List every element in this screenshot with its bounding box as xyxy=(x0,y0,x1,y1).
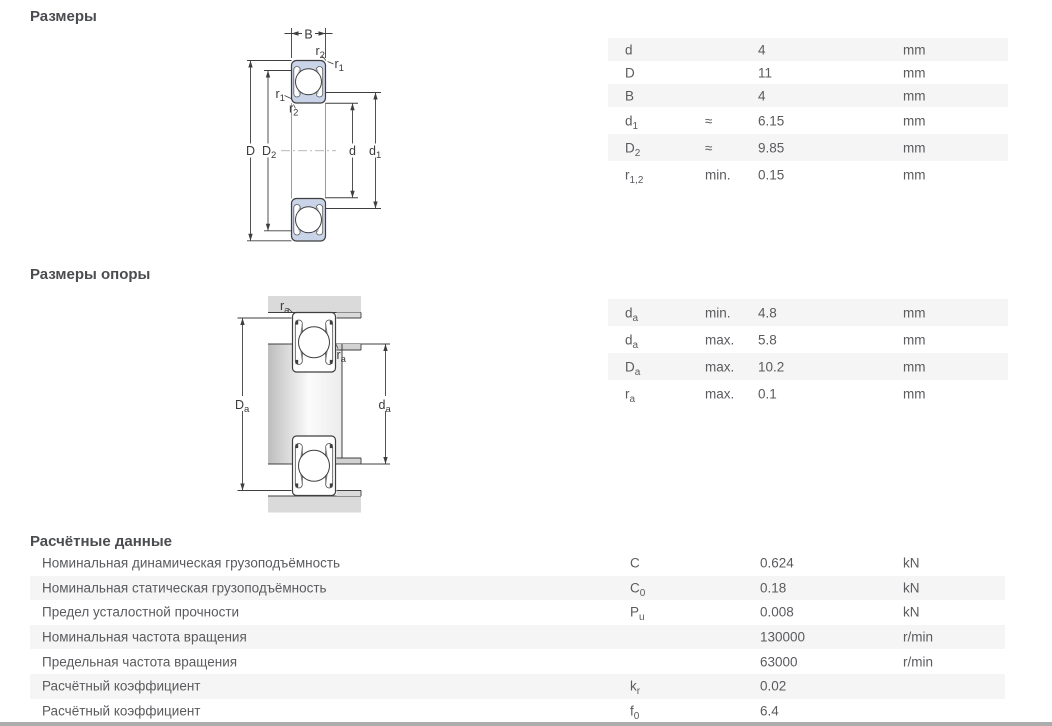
bearing-top xyxy=(292,61,326,104)
section-title-calculation-data: Расчётные данные xyxy=(30,533,172,550)
table-row: Номинальная частота вращения 130000 r/mi… xyxy=(30,625,1005,650)
dimensions-table: d 4 mm D 11 mm B 4 mm d1 ≈ 6.15 mm D2 ≈ … xyxy=(608,38,1008,188)
ball-top xyxy=(299,327,330,358)
table-row: Предел усталостной прочности Pu 0.008 kN xyxy=(30,600,1005,625)
label-r1-left: r1 xyxy=(276,87,285,104)
abutment-bearing-top xyxy=(293,313,336,373)
dimension-da: da xyxy=(377,344,396,464)
dimension-Da: Da xyxy=(234,318,254,491)
ball-bottom xyxy=(296,207,322,233)
table-row: D 11 mm xyxy=(608,61,1008,84)
label-r1-top: r1 xyxy=(335,57,344,74)
table-row: ra max. 0.1 mm xyxy=(608,380,1008,407)
abutment-table: da min. 4.8 mm da max. 5.8 mm Da max. 10… xyxy=(608,299,1008,407)
table-row: Расчётный коэффициент f0 6.4 xyxy=(30,699,1005,724)
table-row: Номинальная динамическая грузоподъёмност… xyxy=(30,551,1005,576)
table-row: Da max. 10.2 mm xyxy=(608,353,1008,380)
table-row: d1 ≈ 6.15 mm xyxy=(608,107,1008,134)
bearing-bottom xyxy=(292,199,326,242)
bearing-datasheet-page: Размеры B xyxy=(0,0,1052,726)
section-title-abutment: Размеры опоры xyxy=(30,266,150,283)
ball-top xyxy=(296,69,322,95)
label-r2-left: r2 xyxy=(289,102,298,119)
label-d: d xyxy=(349,144,356,158)
label-B: B xyxy=(304,28,312,42)
table-row: Номинальная статическая грузоподъёмность… xyxy=(30,576,1005,601)
shaft-housing-diagram: Da da ra ra xyxy=(230,292,405,520)
table-row: B 4 mm xyxy=(608,84,1008,107)
table-row: da min. 4.8 mm xyxy=(608,299,1008,326)
table-row: d 4 mm xyxy=(608,38,1008,61)
dimension-d: d xyxy=(326,103,359,198)
table-row: r1,2 min. 0.15 mm xyxy=(608,161,1008,188)
table-row: Расчётный коэффициент kr 0.02 xyxy=(30,674,1005,699)
ball-bottom xyxy=(299,450,330,481)
table-row: da max. 5.8 mm xyxy=(608,326,1008,353)
abutment-bearing-bottom xyxy=(293,436,336,496)
bearing-cross-section-diagram: B D xyxy=(230,25,420,250)
section-title-dimensions: Размеры xyxy=(30,8,97,25)
section-divider-bar xyxy=(0,722,1052,726)
label-D: D xyxy=(246,144,255,158)
table-row: D2 ≈ 9.85 mm xyxy=(608,134,1008,161)
table-row: Предельная частота вращения 63000 r/min xyxy=(30,649,1005,674)
label-r2-top: r2 xyxy=(316,44,325,61)
calculation-data-table: Номинальная динамическая грузоподъёмност… xyxy=(30,551,1005,723)
